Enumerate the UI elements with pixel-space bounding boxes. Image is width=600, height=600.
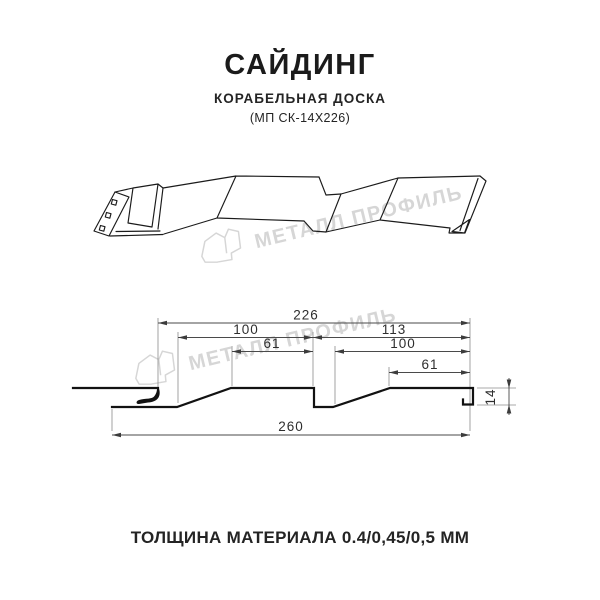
profile-outline — [73, 388, 473, 407]
watermark-brand-text: МЕТАЛЛ ПРОФИЛЬ — [253, 182, 465, 253]
dimension-label-260: 260 — [278, 419, 304, 434]
dimension-label-61-left: 61 — [263, 336, 280, 351]
technical-drawing: МЕТАЛЛ ПРОФИЛЬ МЕТАЛЛ ПРОФИЛЬ — [0, 0, 600, 600]
dimension-label-14: 14 — [483, 388, 498, 405]
dimension-label-100-left: 100 — [233, 322, 259, 337]
dimension-label-226: 226 — [293, 308, 319, 323]
dimension-label-100-right: 100 — [390, 336, 416, 351]
lock-pocket — [110, 184, 163, 236]
interlock-hook — [137, 389, 160, 405]
thickness-note: ТОЛЩИНА МАТЕРИАЛА 0.4/0,45/0,5 ММ — [0, 528, 600, 548]
dimension-label-61-right: 61 — [421, 357, 438, 372]
product-sheet: САЙДИНГ КОРАБЕЛЬНАЯ ДОСКА (МП СК-14Х226)… — [0, 0, 600, 600]
brand-logo-icon — [131, 349, 178, 388]
dimension-label-113: 113 — [382, 322, 407, 337]
brand-logo-icon — [197, 227, 244, 266]
